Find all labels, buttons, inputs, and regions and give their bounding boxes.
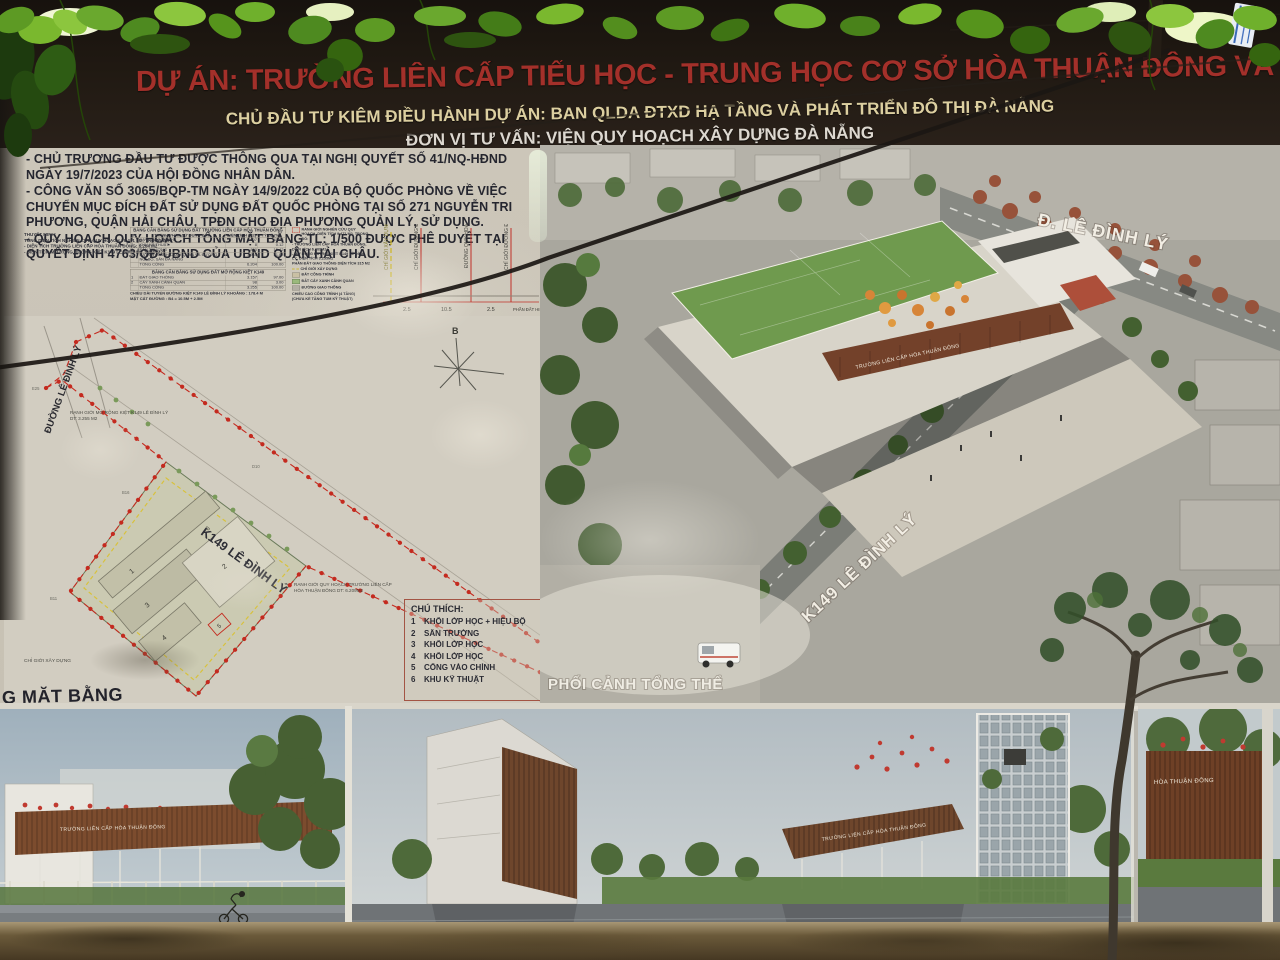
table-cell: 97.00 — [258, 275, 284, 279]
dim-label: 10.5 — [441, 307, 452, 313]
greenery-symbol — [292, 279, 300, 284]
road-symbol — [292, 286, 300, 291]
table-cell: TỔNG CỘNG — [139, 263, 226, 267]
table-row: 5CỔNG VÀO CHÍNH — [411, 663, 539, 672]
table-cell: ĐẤT CÔNG TRÌNH — [139, 238, 226, 242]
table-row: TỔNG CỘNG3.255100.00 — [130, 285, 286, 290]
table-cell: 100.00 — [258, 285, 284, 289]
boundary-marker: D10 — [252, 464, 260, 469]
table-cell: 2 — [131, 243, 140, 247]
legend-boundary-sub1: - TRƯỜNG LIÊN CẤP HÒA THUẬN ĐÔNG, DIỆN T… — [292, 242, 370, 251]
cross-section-label: ĐƯỜNG QUY HOẠCH — [463, 224, 470, 268]
table-cell: 31.88 — [258, 253, 284, 262]
build-line-symbol — [292, 269, 299, 270]
compass-north-label: B — [452, 326, 459, 336]
cross-section-label: CHỈ GIỚI ĐƯỜNG ĐỎ — [503, 224, 510, 270]
legend-title: CHÚ THÍCH: — [411, 604, 539, 614]
table-row: 6KHU KỸ THUẬT — [411, 675, 539, 684]
table-cell: 3.157 — [226, 275, 259, 279]
boundary-marker: E25 — [32, 386, 40, 391]
legend-construction: ĐẤT CÔNG TRÌNH — [302, 272, 335, 277]
map-legend: RANH GIỚI NGHIÊN CỨU QUY HOẠCH, DIỆN TÍC… — [292, 227, 372, 327]
legend-boundary: RANH GIỚI NGHIÊN CỨU QUY HOẠCH, DIỆN TÍC… — [302, 227, 371, 241]
road-length-note: CHIỀU DÀI TUYẾN ĐƯỜNG KIỆT K149 LÊ ĐÌNH … — [130, 291, 286, 295]
table-cell: ĐẤT CÂY XANH CẢNH QUAN VÀ ĐƯỜNG NỘI BỘ, … — [139, 253, 226, 262]
table-cell: 4 — [131, 253, 140, 262]
table-cell: 4 — [411, 652, 424, 661]
legend-height2: (CHƯA KỂ TẦNG TUM KỸ THUẬT) — [292, 296, 370, 301]
build-line-note: CHỈ GIỚI XÂY DỰNG — [24, 657, 71, 664]
legend-green: ĐẤT CÂY XANH CẢNH QUAN — [302, 279, 354, 284]
existing-land-label: PHẦN ĐẤT HIỆN TRẠNG — [513, 307, 543, 312]
legend-items: 1KHỐI LỚP HỌC + HIỆU BỘ2SÂN TRƯỜNG3KHỐI … — [411, 617, 539, 684]
dim-label: 2.5 — [487, 307, 495, 313]
table-cell: 3.00 — [258, 280, 284, 284]
expand-boundary-area: DT: 3.255 M2 — [70, 416, 98, 421]
table-cell: 3 — [411, 640, 424, 649]
legend-boundary-sub2: - MỞ RỘNG ĐƯỜNG KIỆT K149 LÊ ĐÌNH LÝ, DI… — [292, 251, 370, 260]
table-row: 1KHỐI LỚP HỌC + HIỆU BỘ — [411, 617, 539, 626]
table-cell — [131, 285, 140, 289]
table-cell: 100.00 — [258, 263, 284, 267]
table-cell: 2 — [411, 629, 424, 638]
legend-road: ĐƯỜNG GIAO THÔNG — [302, 285, 342, 290]
table-cell: 1 — [131, 238, 140, 242]
legend-box: CHÚ THÍCH: 1KHỐI LỚP HỌC + HIỆU BỘ2SÂN T… — [404, 599, 546, 701]
table-cell: CÂY XANH CẢNH QUAN — [139, 280, 226, 284]
table-cell: 15.42 — [258, 248, 284, 252]
overhanging-foliage — [0, 0, 1280, 170]
table-cell: SÂN TRƯỜNG — [139, 248, 226, 252]
table-row: TỔNG CỘNG6.204100.00 — [130, 263, 286, 268]
table-cell: ĐẤT GIAO THÔNG — [139, 275, 226, 279]
table-cell: 800 — [226, 248, 259, 252]
leaves — [0, 0, 1280, 157]
table-cell: 1.945 — [226, 253, 259, 262]
table-cell: 2 — [131, 280, 140, 284]
construction-symbol — [292, 273, 300, 278]
table-row: 2SÂN TRƯỜNG — [411, 629, 539, 638]
table-row: 4ĐẤT CÂY XANH CẢNH QUAN VÀ ĐƯỜNG NỘI BỘ,… — [130, 253, 286, 262]
legend-build-line: CHỈ GIỚI XÂY DỰNG — [301, 267, 338, 272]
school-boundary-note: RANH GIỚI QUY HOẠCH TRƯỜNG LIÊN CẤP — [294, 580, 392, 587]
table-cell: 41.98 — [258, 238, 284, 242]
expand-boundary-note: RANH GIỚI MỞ RỘNG KIỆT K149 LÊ ĐÌNH LÝ — [70, 408, 168, 415]
table-cell — [131, 263, 140, 267]
panel-divider — [345, 706, 352, 930]
table-cell: TỔNG CỘNG — [139, 285, 226, 289]
cross-section-label: CHỈ GIỚI ĐƯỜNG ĐỎ — [413, 224, 420, 270]
table-cell: 1 — [131, 275, 140, 279]
legend-traffic: PHẦN ĐẤT GIAO THÔNG DIỆN TÍCH 315 M2 — [292, 261, 370, 266]
dim-label: 2.5 — [403, 307, 411, 313]
table-cell: 3.255 — [226, 285, 259, 289]
table-cell: 5 — [411, 663, 424, 672]
perspective-caption: PHỐI CẢNH TỔNG THỂ — [548, 675, 723, 693]
boundary-marker: B16 — [122, 490, 130, 495]
land-use-tables: BẢNG CÂN BẰNG SỬ DỤNG ĐẤT TRƯỜNG LIÊN CẤ… — [130, 227, 295, 322]
land-use-table1: 1ĐẤT CÔNG TRÌNH2.60741.982KHU KỸ THUẬT80… — [130, 238, 286, 267]
table-cell: 8 — [226, 243, 259, 247]
photo-project-billboard: DỰ ÁN: TRƯỜNG LIÊN CẤP TIỂU HỌC - TRUNG … — [0, 0, 1280, 960]
table-row: 4KHỐI LỚP HỌC — [411, 652, 539, 661]
land-use-table2: 1ĐẤT GIAO THÔNG3.15797.002CÂY XANH CẢNH … — [130, 275, 286, 290]
boundary-marker: B11 — [50, 596, 58, 601]
table-cell: 6.204 — [226, 263, 259, 267]
table-cell: 98 — [226, 280, 259, 284]
table-cell: 6 — [411, 675, 424, 684]
table-row: 3KHỐI LỚP HỌC — [411, 640, 539, 649]
boundary-symbol — [292, 228, 300, 233]
cross-section-label: CHỈ GIỚI XÂY DỰNG — [383, 224, 390, 270]
table-cell: KHU KỸ THUẬT — [139, 243, 226, 247]
table-cell: 3 — [131, 248, 140, 252]
foreground-tree — [1040, 560, 1280, 960]
table-cell: 2.607 — [226, 238, 259, 242]
road-section-note: MẶT CẮT ĐƯỜNG : B4 = 10.5M + 2.5M — [130, 297, 286, 301]
school-boundary-area: HÒA THUẬN ĐÔNG DT: 6.209M2 — [294, 587, 364, 593]
table-cell: 0.12 — [258, 243, 284, 247]
table-cell: 1 — [411, 617, 424, 626]
